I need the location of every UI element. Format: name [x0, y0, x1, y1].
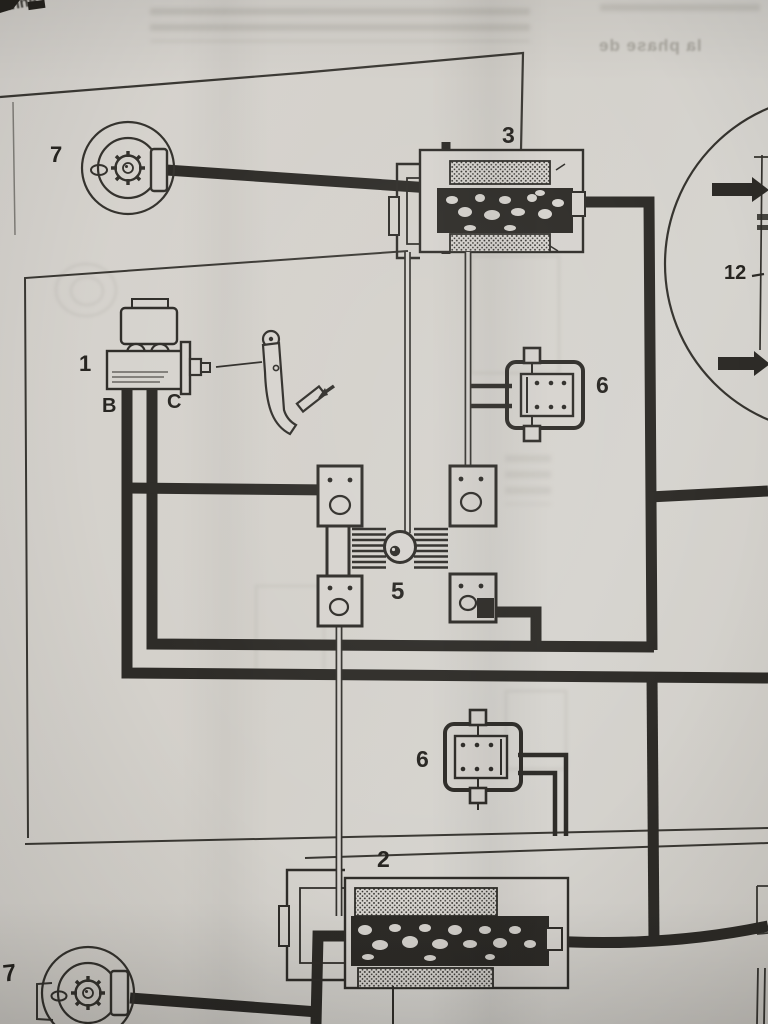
line-to-compensator [124, 488, 332, 490]
master-cylinder [107, 299, 210, 394]
servo-circle [665, 95, 768, 433]
pressure-unit-top [389, 150, 585, 258]
line-unit3-right-down [580, 202, 652, 650]
line-wheel-top-to-unit3 [166, 170, 446, 189]
page-corner-marks [0, 0, 45, 13]
brake-pedal [216, 331, 334, 434]
servo-arrow-bottom [718, 351, 768, 376]
line-wheel-bottom [130, 998, 318, 1012]
servo-arrow-top [712, 177, 768, 202]
limiter-lower [445, 710, 521, 810]
brake-circuit-diagram [0, 0, 768, 1024]
wheel-bottom-assembly [42, 947, 134, 1024]
scanned-manual-page: la phase de anne [0, 0, 768, 1024]
line-branch-right [649, 491, 768, 497]
limiter-upper [507, 348, 583, 441]
pushrod [216, 362, 262, 367]
line-right-vertical-lower [652, 676, 654, 940]
wheel-top-assembly [82, 122, 174, 214]
